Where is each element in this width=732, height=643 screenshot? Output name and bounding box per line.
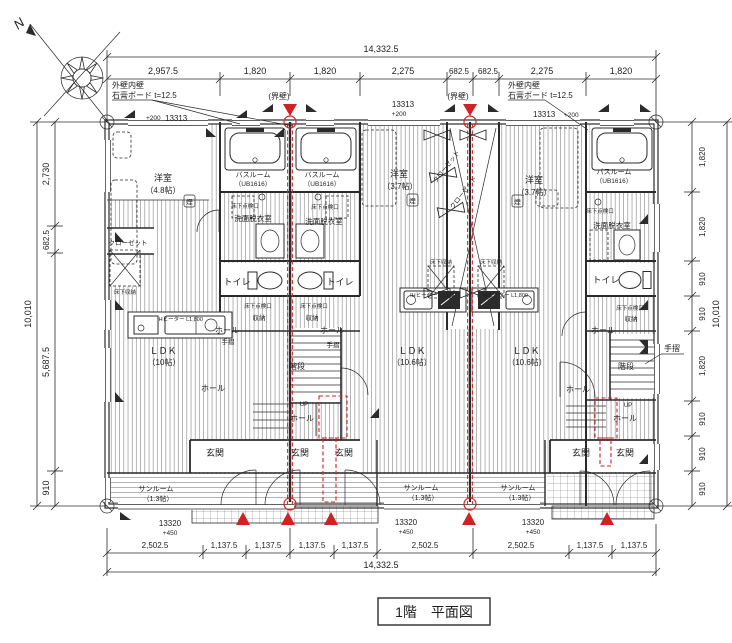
level-mark: +450 (526, 529, 541, 536)
dimension-top: 14,332.5 2,957.5 1,820 1,820 2,275 682.5… (103, 44, 660, 122)
room-label-genkan: 玄関 (291, 447, 309, 458)
storage-label: 床下収納 (430, 258, 453, 266)
room-label-hall: ホール (201, 384, 225, 393)
room-size: （10帖） (148, 357, 181, 367)
dim-right-seg: 910 (698, 272, 707, 286)
room-size: （10.6帖） (507, 357, 547, 367)
level-mark: 13313 (165, 114, 188, 123)
room-label-senmen: 洗面脱衣室 (305, 216, 343, 226)
dim-left-seg: 682.5 (42, 229, 51, 250)
floor-plan-page: { "title": "1階 平面図", "compass": { "north… (0, 0, 732, 643)
room-size: （4.8帖） (145, 185, 180, 195)
dim-top-seg: 2,275 (392, 66, 415, 76)
room-label-senmen: 洗面脱衣室 (234, 213, 272, 223)
dim-right-seg: 910 (698, 412, 707, 426)
room-size: （1.3帖） (408, 493, 439, 502)
dim-right-seg: 1,820 (698, 146, 707, 167)
dim-right-seg: 910 (698, 482, 707, 496)
room-label-sunroom: サンルーム (501, 484, 536, 492)
room-label-closet: クローゼット (109, 238, 148, 247)
room-size: （UB1616） (596, 177, 633, 185)
level-mark: +200 (392, 111, 407, 118)
floor-plan-drawing: N (0, 0, 732, 643)
dim-bottom-seg: 1,137.5 (621, 541, 648, 550)
dim-right-seg: 1,820 (698, 355, 707, 376)
north-label: N (11, 14, 28, 32)
kitchen-label: IHヒーター L1,800 (157, 315, 203, 323)
room-label-toilet: トイレ (592, 275, 619, 285)
room-size: （UB1616） (304, 180, 341, 188)
room-label-bathroom: バスルーム (597, 168, 632, 176)
dim-bottom-seg: 2,502.5 (142, 541, 169, 550)
dim-bottom-seg: 1,137.5 (211, 541, 238, 550)
dimension-left: 2,730 682.5 5,687.5 910 10,010 (23, 118, 107, 510)
wall-note: 外壁内壁 (112, 80, 144, 90)
handrail-label: 手摺 (222, 337, 236, 346)
level-mark: +450 (399, 529, 414, 536)
wall-note: 石膏ボード t=12.5 (508, 90, 573, 100)
dim-top-ticks (103, 53, 660, 83)
room-size: （1.3帖） (505, 493, 536, 502)
room-label-ldk: ＬＤＫ (398, 346, 425, 356)
dim-left-seg: 2,730 (41, 163, 51, 186)
smoke-detector-glyph: 煙 (186, 197, 193, 206)
party-wall-label: (界壁) (447, 91, 469, 101)
dim-left-total: 10,010 (23, 300, 33, 328)
room-label-genkan: 玄関 (335, 447, 353, 458)
room-label-hall: ホール (320, 326, 344, 335)
bathtub (592, 128, 652, 170)
dim-top-seg: 2,957.5 (148, 66, 178, 76)
wall-note: 石膏ボード t=12.5 (112, 90, 177, 100)
dim-bottom-seg: 1,137.5 (255, 541, 282, 550)
dim-bottom-seg: 2,502.5 (412, 541, 439, 550)
party-wall-marker-top (283, 104, 297, 116)
level-mark: +450 (163, 530, 178, 537)
storage-label: 収納 (625, 314, 638, 323)
entry-marker (462, 512, 476, 525)
room-label-toilet: トイレ (326, 277, 353, 287)
window-top-row (128, 118, 634, 126)
dim-right-total: 10,010 (711, 300, 721, 328)
storage-label: 収納 (306, 313, 319, 322)
inspection-hatch-label: 床下点検口 (311, 203, 339, 211)
level-mark: +200 (146, 115, 161, 122)
room-label-senmen: 洗面脱衣室 (593, 220, 631, 230)
dim-top-seg: 682.5 (478, 67, 499, 76)
dim-right-seg: 910 (698, 307, 707, 321)
level-mark: 13320 (522, 518, 545, 527)
room-label-genkan: 玄関 (206, 447, 224, 458)
room-label-bathroom: バスルーム (305, 171, 340, 179)
bathtub (225, 128, 285, 170)
dim-left-seg: 5,687.5 (41, 347, 51, 377)
bathtub (296, 128, 356, 170)
room-size: （3.7帖） (382, 181, 417, 191)
level-mark: 13313 (533, 110, 556, 119)
room-label-yoshitsu: 洋室 (525, 174, 543, 185)
level-mark: 13320 (395, 518, 418, 527)
storage-label: 床下収納 (480, 258, 503, 266)
dim-right-ticks (688, 118, 731, 510)
stairs-label: 階段 (289, 361, 305, 371)
smoke-detector-glyph: 煙 (514, 197, 521, 206)
room-size: （1.3帖） (143, 494, 174, 503)
room-label-bathroom: バスルーム (236, 171, 271, 179)
level-mark: 13320 (159, 519, 182, 528)
dim-bottom-total: 14,332.5 (363, 560, 398, 570)
dim-bottom-seg: 1,137.5 (342, 541, 369, 550)
up-label: UP (300, 402, 308, 408)
dim-top-seg: 2,275 (531, 66, 554, 76)
level-mark: 13313 (392, 100, 415, 109)
dim-top-seg: 1,820 (610, 66, 633, 76)
toilet (619, 272, 651, 289)
dim-top-seg: 1,820 (244, 66, 267, 76)
party-wall-marker-top (463, 104, 477, 116)
room-label-ldk: ＬＤＫ (512, 346, 539, 356)
level-mark: +200 (564, 112, 579, 119)
dim-top-seg: 1,820 (314, 66, 337, 76)
drawing-title: 1階 平面図 (378, 598, 490, 625)
dim-top-total: 14,332.5 (363, 44, 398, 54)
inspection-hatch-label: 床下点検口 (231, 202, 259, 210)
room-label-ldk: ＬＤＫ (149, 346, 176, 356)
room-label-genkan: 玄関 (616, 447, 634, 458)
up-label: UP (624, 403, 632, 409)
room-size: （10.6帖） (392, 357, 432, 367)
inspection-hatch-label: 床下点検口 (244, 302, 272, 310)
dim-bottom-seg: 1,137.5 (577, 541, 604, 550)
dim-top-seg: 682.5 (449, 67, 470, 76)
toilet (248, 272, 282, 289)
kitchen-label: IHヒーター L1,800 (482, 291, 528, 299)
room-label-hall: ホール (591, 326, 615, 335)
room-label-yoshitsu: 洋室 (154, 172, 172, 183)
room-label-hall: ホール (215, 326, 239, 335)
dim-left-seg: 910 (41, 480, 51, 495)
dim-bottom-seg: 2,502.5 (508, 541, 535, 550)
dim-right-seg: 1,820 (698, 216, 707, 237)
room-label-sunroom: サンルーム (404, 484, 439, 492)
kitchen-label: IHヒーター L1,800 (410, 291, 456, 299)
dim-bottom-seg: 1,137.5 (299, 541, 326, 550)
storage-label: 床下収納 (114, 288, 137, 296)
smoke-detector-glyph: 煙 (409, 196, 416, 205)
handrail-label: 手摺 (327, 340, 341, 349)
room-label-hall: ホール (290, 414, 314, 423)
north-compass: N (11, 14, 120, 124)
inspection-hatch-label: 床下点検口 (300, 302, 328, 310)
title-text: 1階 平面図 (395, 604, 473, 620)
room-label-toilet: トイレ (223, 277, 250, 287)
inspection-hatch-label: 床下点検口 (586, 207, 614, 215)
room-label-genkan: 玄関 (572, 447, 590, 458)
storage-label: 収納 (253, 313, 266, 322)
room-label-sunroom: サンルーム (139, 485, 174, 493)
room-label-yoshitsu: 洋室 (390, 168, 408, 179)
inspection-hatch-label: 床下点検口 (616, 304, 644, 312)
stairs-label: 階段 (618, 361, 634, 371)
room-size: （UB1616） (235, 180, 272, 188)
handrail-label: 手摺 (664, 343, 680, 353)
room-label-hall: ホール (566, 385, 590, 394)
party-wall-label: (界壁) (268, 91, 290, 101)
dim-right-seg: 910 (698, 447, 707, 461)
kitchen-counter (472, 288, 538, 312)
dimension-bottom: 2,502.5 1,137.5 1,137.5 1,137.5 1,137.5 … (103, 524, 660, 576)
room-size: （3.7帖） (516, 187, 551, 197)
room-label-hall: ホール (613, 414, 637, 423)
dimension-right: 1,820 1,820 910 910 1,820 910 910 910 10… (656, 118, 732, 510)
wall-note: 外壁内壁 (508, 80, 540, 90)
